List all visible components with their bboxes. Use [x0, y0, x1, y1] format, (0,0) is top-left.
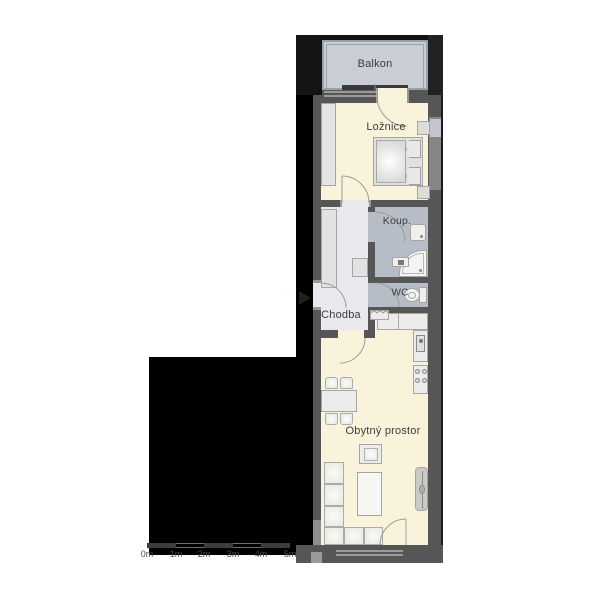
kitchen-sink-unit [413, 330, 428, 362]
dining-chair [325, 377, 338, 389]
pillow [406, 167, 421, 185]
sofa-cushion [324, 484, 344, 506]
pillow [406, 140, 421, 158]
balcony-door-gap [378, 88, 407, 103]
wc-basin [392, 257, 409, 267]
hall-label: Chodba [321, 309, 361, 321]
hall-wardrobe [321, 209, 337, 288]
bathroom-label: Koup. [383, 215, 411, 227]
burner [422, 378, 427, 383]
hall-cabinet [352, 258, 368, 277]
wall-corner-cap [311, 552, 322, 563]
wall-left [313, 88, 321, 563]
scale-segment [233, 543, 261, 548]
dining-chair [325, 413, 338, 425]
bathroom-door-gap [368, 212, 375, 242]
scale-tick-label: 1m [165, 549, 187, 559]
stove [413, 365, 428, 394]
dining-chair [340, 413, 353, 425]
scale-tick-label: 0m [136, 549, 158, 559]
nightstand [417, 121, 430, 135]
bedroom-label: Ložnice [366, 121, 405, 133]
wc-basin-bowl [398, 260, 404, 265]
toilet-bowl-inner [408, 292, 416, 299]
sofa-cushion [324, 527, 344, 545]
burner [415, 369, 420, 374]
wall-right [428, 35, 443, 563]
balcony-left-pillar [296, 35, 322, 95]
dining-table [321, 390, 357, 412]
scale-segment [147, 543, 176, 548]
wall-bedroom-top [313, 88, 428, 103]
jamb-cap [407, 88, 409, 103]
toilet-tank [419, 287, 427, 303]
dining-chair [340, 377, 353, 389]
wall-cap [313, 520, 321, 545]
jamb-cap [313, 307, 321, 310]
kitchen-faucet [419, 339, 423, 343]
burner [415, 378, 420, 383]
jamb-cap [376, 88, 378, 103]
burner [422, 369, 427, 374]
bedroom-door-gap [342, 200, 369, 207]
floor-plan: Balkon Ložnice Koup. WC Chodba Obytný pr… [0, 0, 600, 600]
bedroom-window [430, 119, 441, 137]
nightstand [417, 186, 430, 199]
wall-bedroom-hall [321, 200, 428, 207]
radiator [415, 467, 428, 511]
radiator-knob [419, 485, 425, 494]
counter-divider [398, 314, 399, 329]
living-room-label: Obytný prostor [346, 425, 421, 437]
sofa-cushion [324, 462, 344, 484]
shower-drain [419, 269, 422, 272]
sink-drain [420, 235, 423, 238]
scale-segment [176, 543, 204, 548]
jamb-cap [369, 200, 371, 207]
mattress [376, 140, 406, 183]
scale-tick-label: 3m [222, 549, 244, 559]
sofa-cushion [324, 506, 344, 527]
entry-door-gap [313, 283, 321, 307]
balcony-label: Balkon [358, 58, 393, 70]
wardrobe [321, 103, 336, 186]
wc-door-gap [368, 283, 375, 307]
scale-segment [204, 543, 233, 548]
bathroom-sink [410, 224, 426, 241]
wc-label: WC [391, 288, 408, 299]
kitchen-appliance [370, 310, 389, 320]
coffee-table [357, 472, 382, 516]
kitchen-sink-basin [416, 335, 425, 352]
scale-tick-label: 2m [193, 549, 215, 559]
bed [373, 137, 423, 186]
jamb-cap [340, 200, 342, 207]
sofa-cushion [364, 527, 383, 545]
armchair-seat [364, 448, 378, 461]
scale-tick-label: 4m [250, 549, 272, 559]
living-door-gap [338, 330, 364, 338]
armchair [359, 444, 382, 464]
entrance-arrow-icon [299, 291, 311, 305]
balcony-right-pillar [428, 35, 443, 95]
jamb-cap [313, 280, 321, 283]
scale-segment [261, 543, 290, 548]
sofa-cushion [344, 527, 364, 545]
scale-tick-label: 5m [279, 549, 301, 559]
outside-mask-block [149, 357, 313, 555]
